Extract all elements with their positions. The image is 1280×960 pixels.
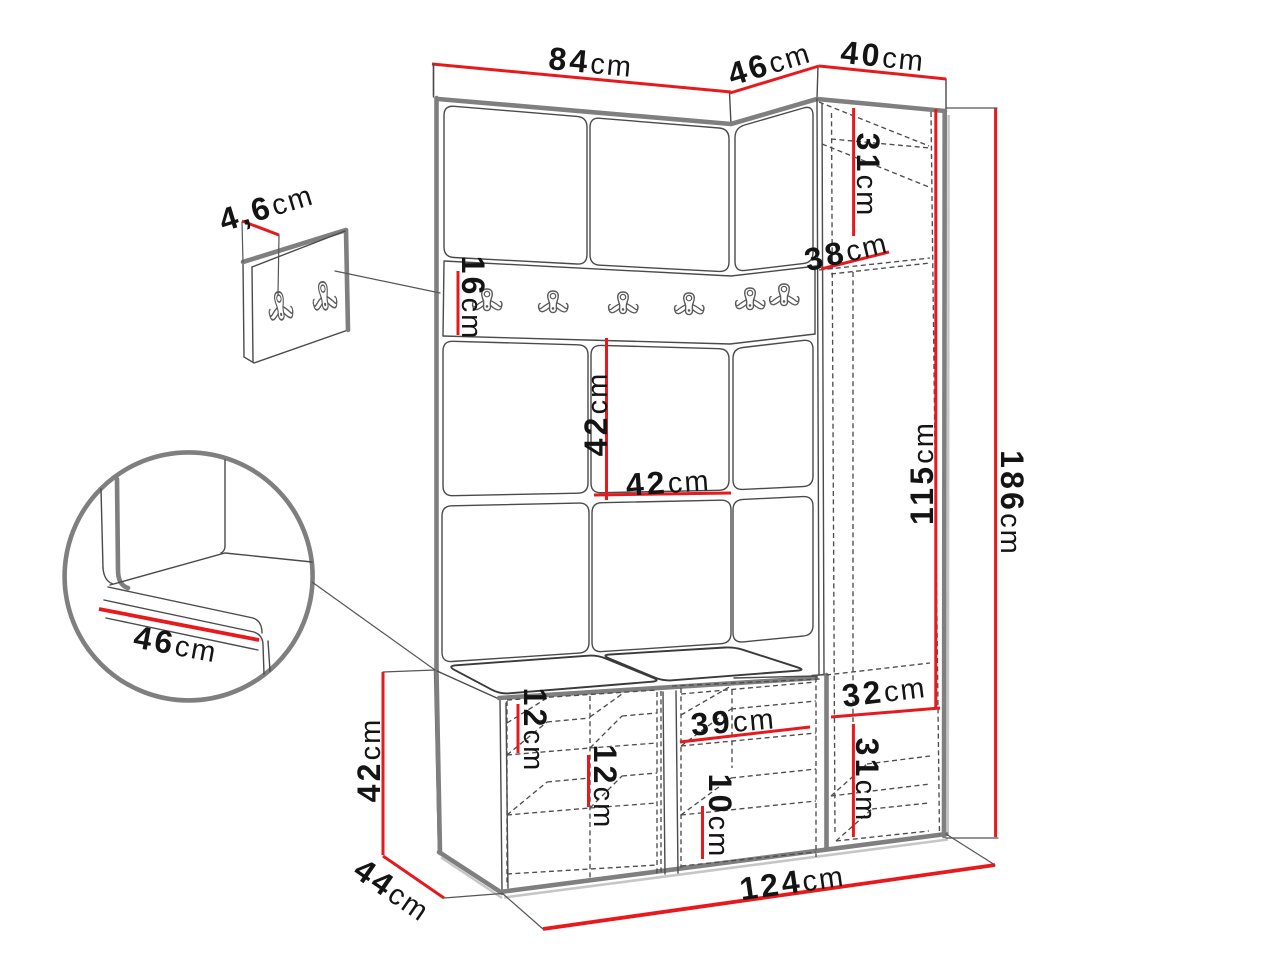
svg-text:10cm: 10cm: [702, 774, 738, 859]
svg-text:32cm: 32cm: [840, 668, 928, 714]
svg-text:186cm: 186cm: [994, 450, 1030, 556]
svg-text:31cm: 31cm: [850, 133, 886, 218]
svg-text:42cm: 42cm: [578, 372, 614, 457]
svg-text:12cm: 12cm: [517, 688, 553, 773]
svg-text:46cm: 46cm: [724, 33, 815, 92]
svg-text:40cm: 40cm: [839, 34, 927, 78]
svg-text:42cm: 42cm: [625, 461, 712, 503]
svg-text:42cm: 42cm: [351, 718, 387, 803]
svg-text:115cm: 115cm: [904, 421, 940, 525]
svg-text:39cm: 39cm: [689, 699, 777, 743]
svg-text:12cm: 12cm: [587, 745, 623, 830]
svg-text:31cm: 31cm: [849, 738, 885, 823]
svg-text:16cm: 16cm: [455, 256, 491, 341]
svg-text:38cm: 38cm: [801, 224, 892, 279]
